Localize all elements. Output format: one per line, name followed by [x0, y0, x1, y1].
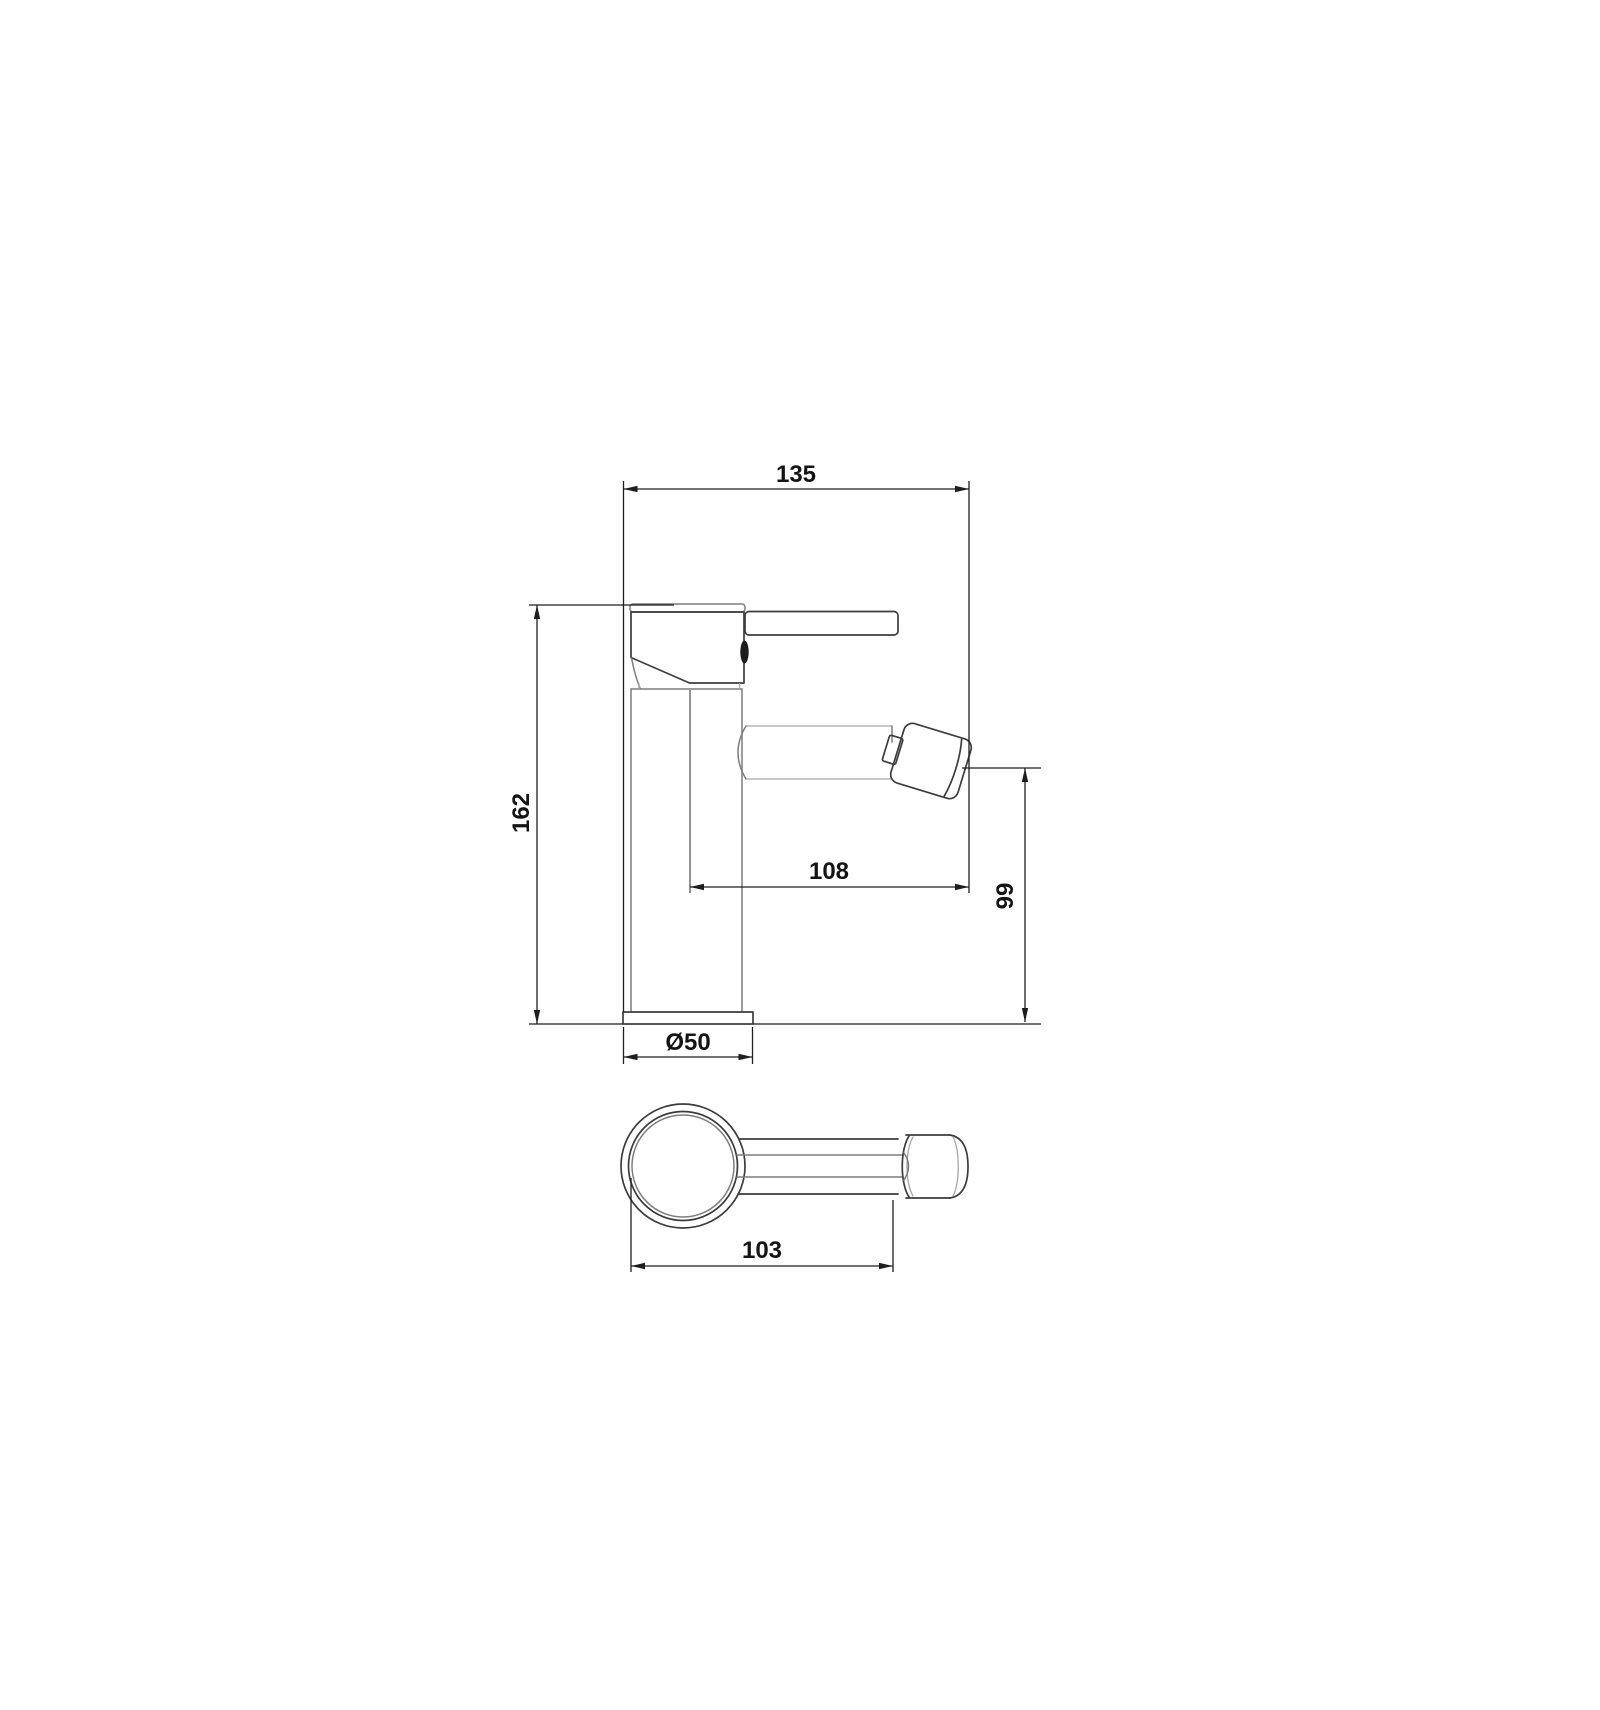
- spout: [738, 726, 892, 779]
- dim-spout-reach: 108: [690, 858, 969, 890]
- arrowhead-right: [955, 486, 969, 492]
- lever-bar: [745, 612, 898, 636]
- dimensions: 135 162 108 99: [508, 461, 1041, 1272]
- arrowhead-bottom: [534, 1010, 540, 1024]
- arrowhead-top: [534, 605, 540, 619]
- base-circle-inner: [632, 1115, 734, 1217]
- arrowhead-left: [624, 486, 638, 492]
- neck-ring: [639, 684, 740, 689]
- dimension-value: 135: [776, 461, 816, 488]
- head-body: [631, 612, 744, 683]
- arrowhead-right: [739, 1054, 753, 1060]
- base-circle-outer: [621, 1104, 745, 1228]
- arrowhead-left: [631, 1263, 645, 1269]
- side-view: [623, 604, 974, 1024]
- mixer-head: [630, 604, 749, 688]
- top-view: [621, 1104, 968, 1228]
- arrowhead-bottom: [1022, 1008, 1028, 1022]
- dim-overall-width: 135: [624, 461, 970, 1012]
- dim-base-diameter: Ø50: [624, 1027, 753, 1064]
- body-column: [631, 684, 742, 1013]
- dimension-value: Ø50: [665, 1029, 710, 1056]
- dimension-value: 162: [508, 793, 535, 833]
- handle-lever: [745, 612, 898, 636]
- technical-drawing-canvas: 135 162 108 99: [0, 0, 1600, 1710]
- dimension-value: 99: [992, 883, 1019, 910]
- top-view-aerator: [902, 1135, 968, 1198]
- top-view-handle: [737, 1139, 903, 1194]
- dim-outlet-height: 99: [753, 768, 1041, 1024]
- dim-overall-height: 162: [508, 605, 674, 1024]
- aerator-face-seam: [944, 740, 964, 797]
- arrowhead-left: [624, 1054, 638, 1060]
- arrowhead-right: [955, 884, 969, 890]
- aerator-right-seam: [953, 1137, 958, 1196]
- arrowhead-left: [690, 884, 704, 890]
- aerator-right-arc: [950, 1135, 968, 1198]
- dimension-value: 103: [742, 1237, 782, 1264]
- dimension-value: 108: [809, 858, 849, 885]
- arrowhead-right: [879, 1263, 893, 1269]
- base-plate: [623, 1012, 753, 1024]
- base-flange: [623, 1012, 753, 1024]
- base-circle-ring: [629, 1112, 738, 1221]
- arrowhead-top: [1022, 768, 1028, 782]
- dim-top-length: 103: [631, 1178, 893, 1272]
- lever-pivot: [740, 641, 748, 664]
- aerator-body: [888, 721, 973, 801]
